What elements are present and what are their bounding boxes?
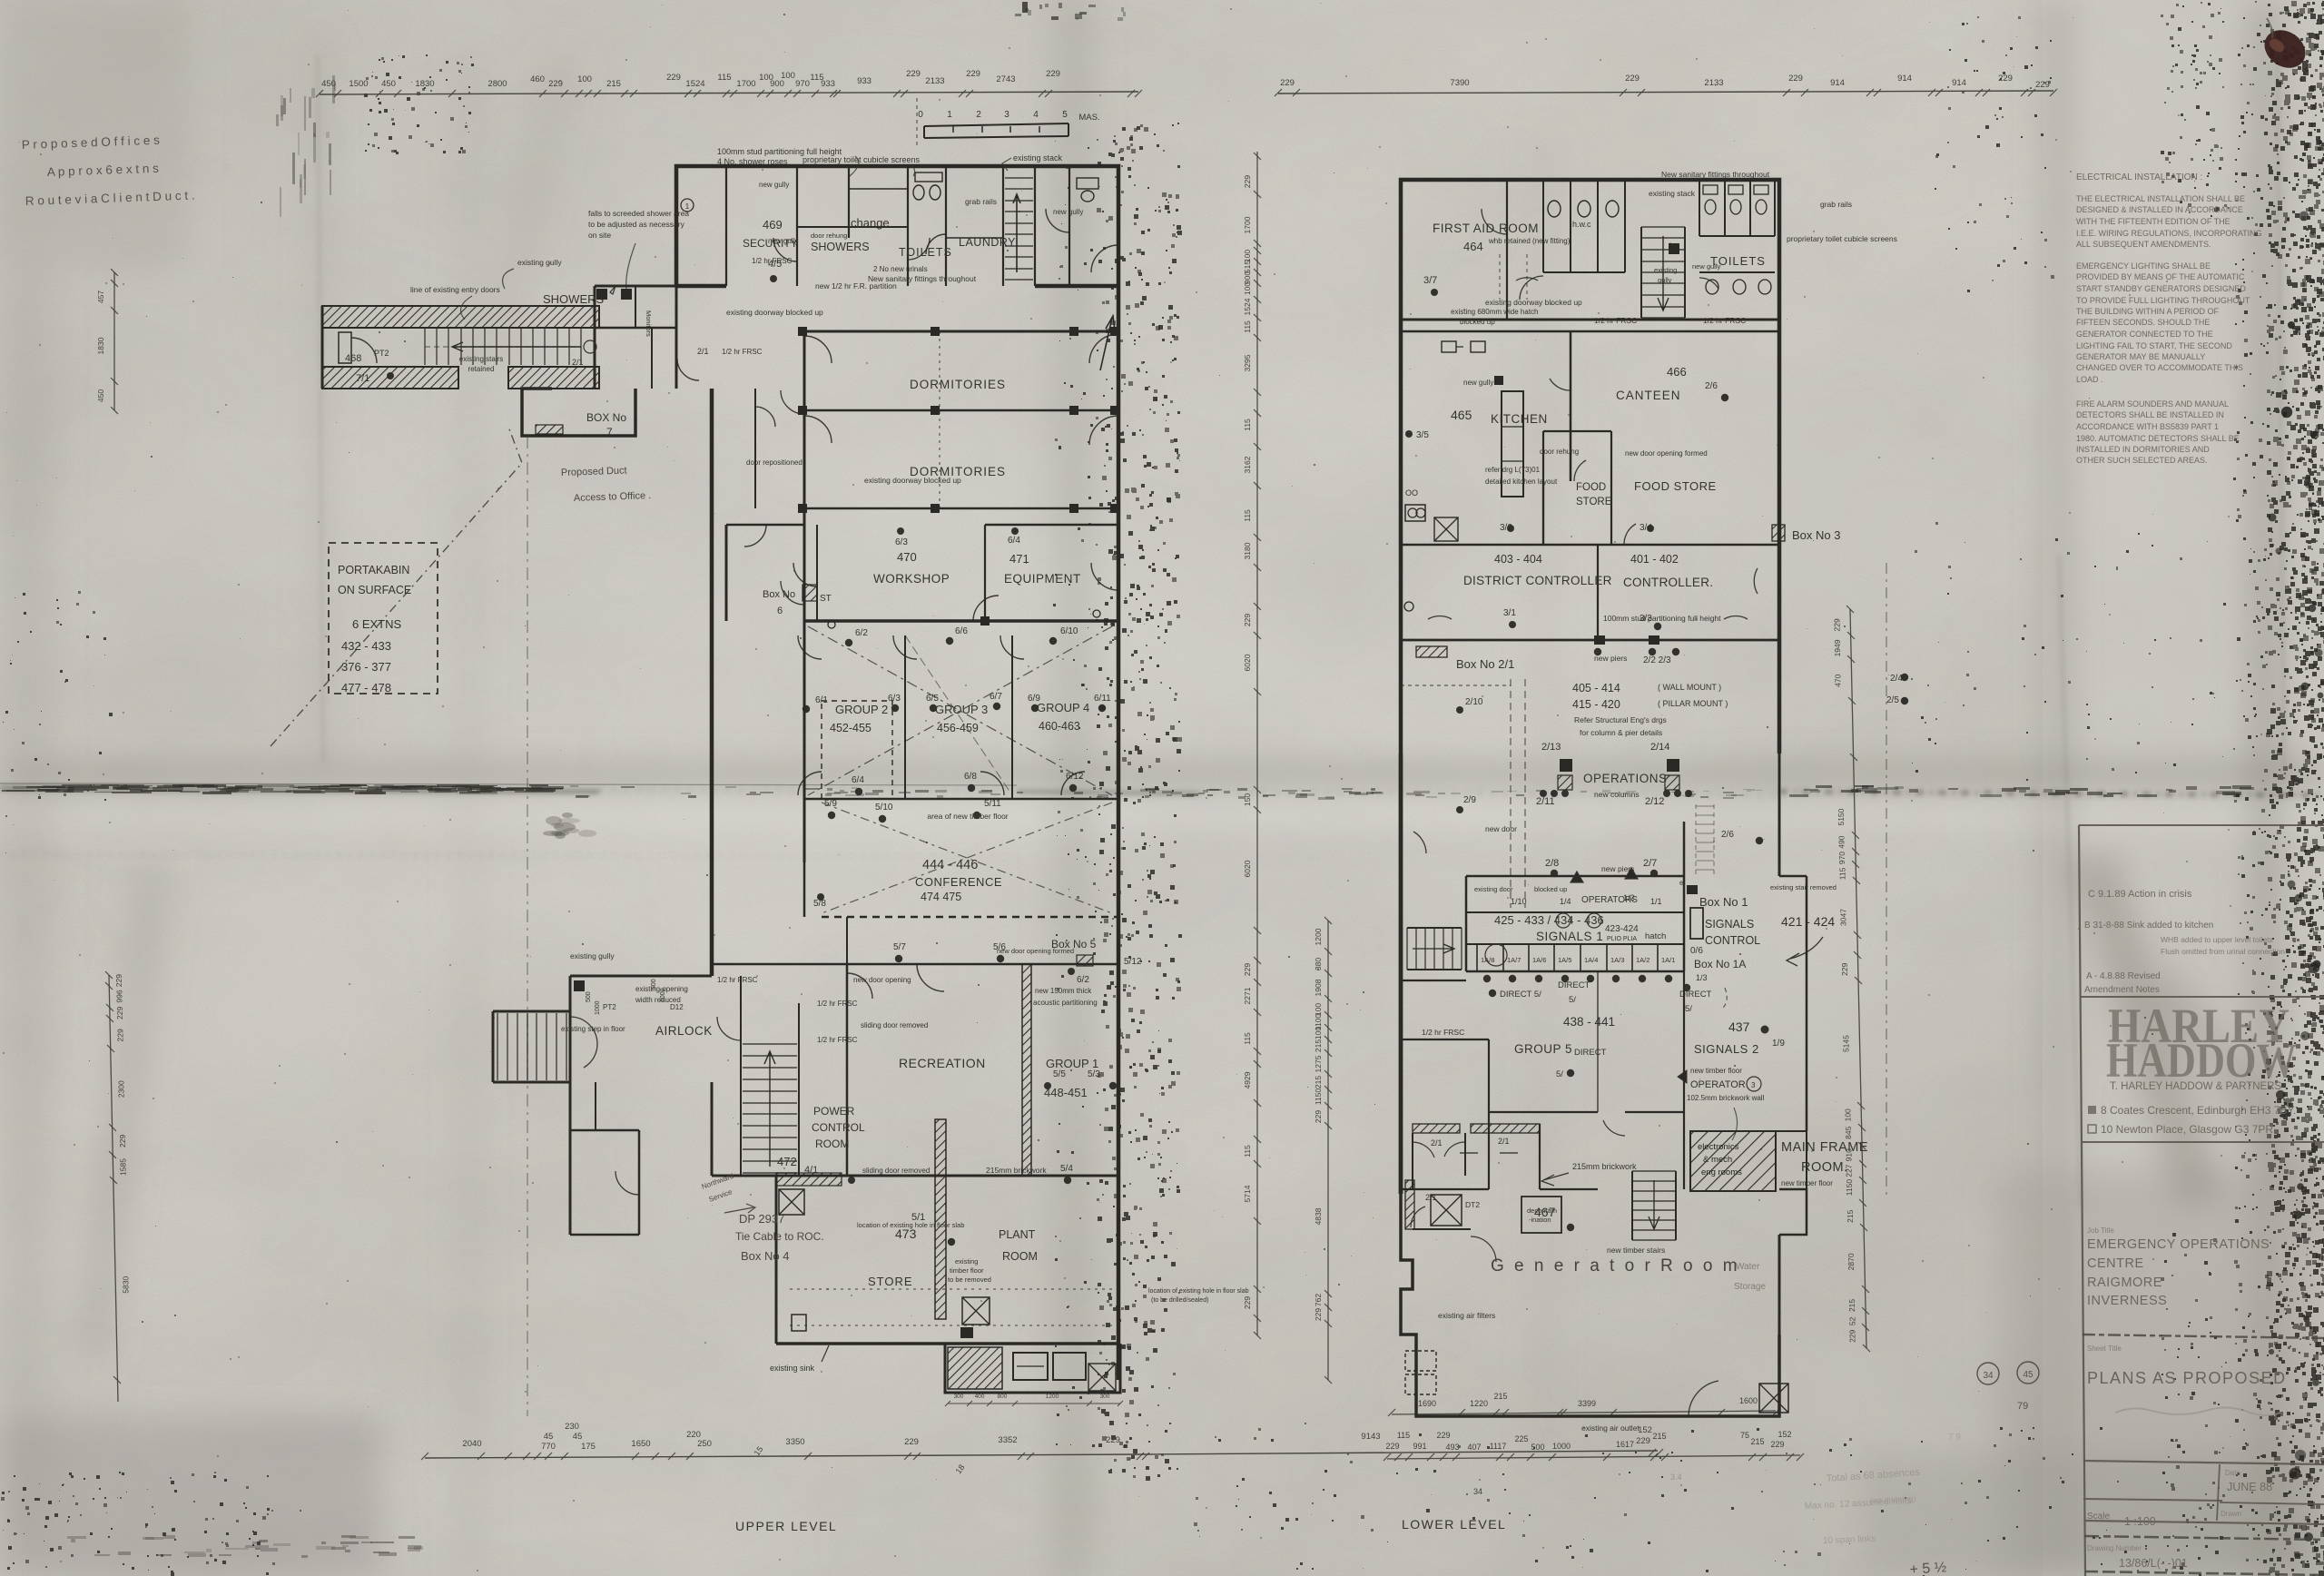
svg-text:1500: 1500 bbox=[349, 79, 368, 89]
svg-text:Scale: Scale bbox=[2087, 1512, 2110, 1522]
svg-text:456-459: 456-459 bbox=[937, 722, 979, 734]
svg-text:FIRE ALARM SOUNDERS AND MANUAL: FIRE ALARM SOUNDERS AND MANUAL bbox=[2076, 399, 2229, 409]
svg-text:1200: 1200 bbox=[1046, 1394, 1059, 1400]
svg-text:229: 229 bbox=[115, 1029, 124, 1041]
svg-text:detailed kitchen layout: detailed kitchen layout bbox=[1485, 478, 1558, 486]
svg-text:438 - 441: 438 - 441 bbox=[1563, 1015, 1615, 1029]
svg-text:Storage: Storage bbox=[1734, 1282, 1766, 1292]
svg-text:229: 229 bbox=[666, 73, 681, 83]
svg-text:INVERNESS: INVERNESS bbox=[2087, 1294, 2167, 1308]
svg-text:ROOM.: ROOM. bbox=[1801, 1160, 1848, 1175]
svg-text:PLIO PLIA: PLIO PLIA bbox=[1607, 936, 1637, 942]
svg-text:location of existing hole in f: location of existing hole in floor slab bbox=[857, 1221, 964, 1229]
svg-text:3399: 3399 bbox=[1578, 1399, 1596, 1408]
svg-text:sliding door removed: sliding door removed bbox=[861, 1021, 928, 1029]
svg-text:SIGNALS: SIGNALS bbox=[1705, 918, 1754, 931]
svg-text:new columns: new columns bbox=[1594, 790, 1640, 799]
svg-text:970: 970 bbox=[795, 79, 810, 89]
svg-text:CONTROLLER.: CONTROLLER. bbox=[1623, 576, 1713, 589]
svg-text:0/6: 0/6 bbox=[1690, 946, 1703, 956]
svg-text:change: change bbox=[851, 216, 890, 230]
svg-text:380: 380 bbox=[1314, 958, 1323, 970]
svg-text:1600: 1600 bbox=[1739, 1396, 1758, 1405]
svg-text:229: 229 bbox=[1106, 1435, 1120, 1445]
svg-text:RECREATION: RECREATION bbox=[899, 1056, 986, 1070]
svg-text:PLANS AS PROPOSED: PLANS AS PROPOSED bbox=[2087, 1369, 2287, 1387]
svg-text:grab rails: grab rails bbox=[965, 197, 997, 206]
svg-text:79: 79 bbox=[2017, 1401, 2028, 1412]
svg-text:existing sink: existing sink bbox=[770, 1364, 815, 1373]
svg-text:2: 2 bbox=[976, 110, 981, 120]
svg-text:215: 215 bbox=[1314, 1039, 1323, 1052]
svg-text:229: 229 bbox=[548, 79, 563, 89]
svg-text:existing doorway blocked up: existing doorway blocked up bbox=[1485, 298, 1582, 307]
svg-text:3350: 3350 bbox=[785, 1437, 804, 1447]
svg-text:34: 34 bbox=[1983, 1371, 1994, 1381]
svg-text:229: 229 bbox=[966, 69, 980, 79]
svg-text:Box No: Box No bbox=[763, 589, 795, 600]
svg-text:1A/4: 1A/4 bbox=[1584, 956, 1598, 964]
svg-text:2/13: 2/13 bbox=[1541, 742, 1561, 753]
svg-text:215: 215 bbox=[606, 79, 621, 89]
svg-text:& mech: & mech bbox=[1703, 1155, 1732, 1165]
svg-text:115: 115 bbox=[1243, 419, 1252, 431]
svg-text:RAIGMORE: RAIGMORE bbox=[2087, 1276, 2162, 1290]
svg-text:1A/7: 1A/7 bbox=[1507, 956, 1521, 964]
svg-text:2300: 2300 bbox=[117, 1080, 126, 1098]
svg-text:2271: 2271 bbox=[1243, 987, 1252, 1004]
svg-text:10 span links: 10 span links bbox=[1823, 1534, 1876, 1546]
svg-text:1/2 hr FRSC: 1/2 hr FRSC bbox=[1594, 316, 1637, 325]
svg-text:FIFTEEN SECONDS. SHOULD THE: FIFTEEN SECONDS. SHOULD THE bbox=[2076, 318, 2210, 327]
svg-text:4 No. shower roses: 4 No. shower roses bbox=[717, 157, 788, 166]
svg-text:3047: 3047 bbox=[1838, 909, 1847, 926]
svg-text:2/14: 2/14 bbox=[1650, 742, 1669, 753]
svg-text:1/4: 1/4 bbox=[1560, 897, 1571, 906]
svg-text:933: 933 bbox=[821, 79, 835, 89]
svg-text:DT2: DT2 bbox=[1465, 1200, 1480, 1209]
svg-text:762: 762 bbox=[1314, 1294, 1323, 1306]
svg-text:existing stairs: existing stairs bbox=[459, 355, 503, 363]
svg-text:1/2 hr FRSC: 1/2 hr FRSC bbox=[722, 348, 763, 356]
svg-text:acoustic partitioning: acoustic partitioning bbox=[1033, 999, 1098, 1007]
svg-text:45: 45 bbox=[573, 1432, 583, 1442]
svg-text:991: 991 bbox=[1413, 1442, 1426, 1451]
svg-text:1/2 hr FRSC: 1/2 hr FRSC bbox=[1422, 1028, 1464, 1037]
svg-text:996: 996 bbox=[115, 990, 124, 1002]
svg-text:115: 115 bbox=[1243, 320, 1252, 333]
svg-text:OO: OO bbox=[1405, 488, 1418, 497]
svg-text:DORMITORIES: DORMITORIES bbox=[910, 378, 1006, 391]
svg-text:GENERATOR CONNECTED TO THE: GENERATOR CONNECTED TO THE bbox=[2076, 330, 2213, 339]
svg-text:TOILETS: TOILETS bbox=[899, 246, 952, 259]
svg-text:5/3: 5/3 bbox=[1088, 1069, 1100, 1079]
svg-text:1150: 1150 bbox=[1845, 1179, 1854, 1197]
svg-text:1220: 1220 bbox=[1470, 1399, 1488, 1408]
svg-text:2/11: 2/11 bbox=[1536, 796, 1555, 807]
svg-text:ALL SUBSEQUENT AMENDMENTS.: ALL SUBSEQUENT AMENDMENTS. bbox=[2076, 240, 2211, 249]
svg-text:1275: 1275 bbox=[1314, 1055, 1323, 1072]
svg-text:2/1: 2/1 bbox=[1498, 1137, 1510, 1146]
svg-text:3/5: 3/5 bbox=[1416, 430, 1429, 440]
svg-text:new door: new door bbox=[1485, 824, 1517, 833]
svg-text:450: 450 bbox=[381, 79, 396, 89]
svg-text:blocked up: blocked up bbox=[1460, 318, 1495, 326]
svg-text:Water: Water bbox=[1736, 1262, 1760, 1272]
svg-text:5/: 5/ bbox=[1569, 995, 1576, 1005]
svg-text:existing stair removed: existing stair removed bbox=[1770, 883, 1837, 891]
svg-text:Flush omitted from urinal conn: Flush omitted from urinal connection bbox=[2161, 947, 2285, 956]
svg-text:405 - 414: 405 - 414 bbox=[1572, 682, 1620, 694]
svg-text:3/1: 3/1 bbox=[1503, 608, 1516, 618]
svg-text:423-424: 423-424 bbox=[1605, 924, 1639, 934]
svg-text:6/8: 6/8 bbox=[964, 772, 977, 782]
svg-text:7390: 7390 bbox=[1450, 78, 1469, 88]
svg-text:1/2 hr FRSC: 1/2 hr FRSC bbox=[817, 1036, 858, 1044]
svg-text:1/9: 1/9 bbox=[1772, 1039, 1785, 1049]
svg-text:229: 229 bbox=[906, 69, 921, 79]
svg-text:Box No 2/1: Box No 2/1 bbox=[1456, 657, 1514, 671]
svg-text:230: 230 bbox=[565, 1422, 579, 1432]
svg-text:on site: on site bbox=[588, 231, 611, 240]
svg-text:3: 3 bbox=[1751, 1081, 1756, 1089]
svg-text:970: 970 bbox=[1837, 852, 1846, 864]
svg-text:new door opening: new door opening bbox=[853, 976, 911, 984]
svg-text:existing air filters: existing air filters bbox=[1438, 1311, 1495, 1320]
svg-text:5150: 5150 bbox=[1837, 808, 1846, 825]
svg-text:Job Title: Job Title bbox=[2087, 1226, 2114, 1235]
svg-text:5/12: 5/12 bbox=[1124, 957, 1142, 967]
svg-text:WORKSHOP: WORKSHOP bbox=[873, 572, 950, 586]
svg-text:DIRECT: DIRECT bbox=[1558, 980, 1590, 990]
svg-text:477 - 478: 477 - 478 bbox=[341, 681, 391, 694]
svg-text:215: 215 bbox=[1493, 1392, 1507, 1401]
svg-text:DISTRICT CONTROLLER: DISTRICT CONTROLLER bbox=[1463, 574, 1612, 587]
svg-text:LOAD .: LOAD . bbox=[2076, 375, 2103, 384]
svg-text:whb retained (new fitting): whb retained (new fitting) bbox=[1488, 237, 1571, 245]
svg-text:1700: 1700 bbox=[736, 79, 755, 89]
svg-text:existing 680mm wide hatch: existing 680mm wide hatch bbox=[1451, 308, 1539, 316]
svg-text:5/: 5/ bbox=[1685, 1004, 1692, 1014]
svg-text:FOOD STORE: FOOD STORE bbox=[1634, 479, 1717, 493]
svg-text:5714: 5714 bbox=[1243, 1185, 1252, 1202]
svg-text:refer drg L(73)01: refer drg L(73)01 bbox=[1485, 466, 1541, 474]
svg-text:h.w.c: h.w.c bbox=[1572, 220, 1591, 229]
svg-text:215: 215 bbox=[1750, 1437, 1764, 1446]
svg-text:250: 250 bbox=[697, 1439, 712, 1449]
svg-text:450: 450 bbox=[321, 79, 336, 89]
svg-text:Box No 1: Box No 1 bbox=[1699, 895, 1748, 909]
svg-text:CANTEEN: CANTEEN bbox=[1616, 389, 1681, 402]
svg-text:2/7: 2/7 bbox=[1643, 858, 1657, 869]
svg-text:444 - 446: 444 - 446 bbox=[922, 858, 978, 872]
svg-text:2800: 2800 bbox=[487, 79, 507, 89]
svg-text:1/2 hr FRSC: 1/2 hr FRSC bbox=[1703, 316, 1746, 325]
svg-text:500: 500 bbox=[586, 991, 592, 1002]
svg-text:466: 466 bbox=[1667, 365, 1687, 379]
svg-text:6 EXTNS: 6 EXTNS bbox=[352, 617, 402, 631]
svg-text:102.5mm brickwork wall: 102.5mm brickwork wall bbox=[1687, 1094, 1765, 1102]
svg-text:new 150mm thick: new 150mm thick bbox=[1035, 987, 1092, 995]
svg-text:to be adjusted as necessary: to be adjusted as necessary bbox=[588, 220, 685, 229]
svg-text:DP 2937: DP 2937 bbox=[739, 1212, 784, 1226]
svg-text:1/1: 1/1 bbox=[1650, 897, 1662, 906]
svg-text:existing doorway blocked up: existing doorway blocked up bbox=[726, 308, 823, 317]
svg-text:421 - 424: 421 - 424 bbox=[1781, 914, 1835, 929]
svg-text:229: 229 bbox=[1832, 618, 1841, 631]
svg-text:4929: 4929 bbox=[1243, 1071, 1252, 1088]
svg-text:229: 229 bbox=[1243, 614, 1252, 626]
svg-text:eng rooms: eng rooms bbox=[1701, 1167, 1742, 1177]
svg-text:existing stack: existing stack bbox=[1013, 153, 1063, 163]
svg-text:7/1: 7/1 bbox=[356, 373, 369, 384]
svg-text:215mm brickwork: 215mm brickwork bbox=[1572, 1162, 1637, 1171]
svg-text:229: 229 bbox=[1625, 74, 1640, 84]
svg-text:1908: 1908 bbox=[1314, 979, 1323, 996]
svg-text:grab rails: grab rails bbox=[1820, 200, 1852, 209]
svg-text:1: 1 bbox=[947, 110, 952, 120]
svg-text:SIGNALS 2: SIGNALS 2 bbox=[1694, 1042, 1759, 1056]
svg-text:Monitors: Monitors bbox=[645, 310, 653, 337]
svg-text:6/3: 6/3 bbox=[888, 694, 901, 704]
svg-text:229: 229 bbox=[1243, 1296, 1252, 1309]
svg-text:D12: D12 bbox=[670, 1003, 684, 1011]
svg-text:3352: 3352 bbox=[998, 1435, 1017, 1445]
svg-text:Sheet Title: Sheet Title bbox=[2087, 1345, 2122, 1353]
svg-text:POWER: POWER bbox=[813, 1105, 855, 1118]
svg-text:6/7: 6/7 bbox=[990, 692, 1002, 702]
svg-text:electronics: electronics bbox=[1698, 1142, 1739, 1152]
svg-text:115: 115 bbox=[1397, 1431, 1410, 1440]
svg-text:START STANDBY GENERATORS DESIG: START STANDBY GENERATORS DESIGNED bbox=[2076, 284, 2246, 293]
svg-text:3/3: 3/3 bbox=[1640, 614, 1652, 624]
svg-text:229: 229 bbox=[115, 1007, 124, 1019]
svg-text:229: 229 bbox=[1280, 78, 1295, 88]
svg-text:retained: retained bbox=[468, 365, 495, 373]
svg-text:115: 115 bbox=[717, 73, 731, 83]
svg-text:Amendment Notes: Amendment Notes bbox=[2084, 985, 2160, 995]
svg-text:432 - 433: 432 - 433 bbox=[341, 639, 391, 653]
svg-text:1200: 1200 bbox=[1314, 928, 1323, 945]
svg-text:CHANGED OVER TO ACCOMMODATE TH: CHANGED OVER TO ACCOMMODATE THIS bbox=[2076, 363, 2243, 372]
svg-text:500: 500 bbox=[651, 979, 657, 990]
svg-text:ST: ST bbox=[820, 594, 832, 604]
svg-text:460: 460 bbox=[530, 74, 545, 84]
svg-text:MAIN FRAME: MAIN FRAME bbox=[1781, 1140, 1868, 1155]
svg-text:PROVIDED BY MEANS OF THE AUTOM: PROVIDED BY MEANS OF THE AUTOMATIC bbox=[2076, 272, 2245, 281]
svg-text:Box No 3: Box No 3 bbox=[1792, 528, 1840, 542]
svg-text:LOWER LEVEL: LOWER LEVEL bbox=[1402, 1517, 1506, 1532]
svg-text:45: 45 bbox=[2023, 1370, 2033, 1380]
svg-text:469: 469 bbox=[763, 218, 783, 231]
svg-text:SHOWERS: SHOWERS bbox=[543, 292, 605, 306]
svg-text:933: 933 bbox=[857, 76, 871, 86]
svg-text:B 31-8-88 Sink added to k: B 31-8-88 Sink added to kitchen bbox=[2084, 921, 2213, 931]
svg-text:13/86/L(- -)01: 13/86/L(- -)01 bbox=[2119, 1557, 2188, 1570]
svg-text:2/6: 2/6 bbox=[1721, 830, 1734, 840]
svg-text:( WALL MOUNT ): ( WALL MOUNT ) bbox=[1658, 683, 1721, 692]
svg-text:PT2: PT2 bbox=[603, 1003, 616, 1011]
svg-text:WITH THE FIFTEENTH EDITION OF: WITH THE FIFTEENTH EDITION OF THE bbox=[2076, 217, 2230, 226]
svg-text:400: 400 bbox=[975, 1394, 985, 1400]
svg-text:8 Coates Crescent, Edinburgh: 8 Coates Crescent, Edinburgh EH3 7BY. bbox=[2101, 1104, 2296, 1117]
svg-text:452-455: 452-455 bbox=[830, 722, 871, 734]
svg-text:proprietary toilet cubicle scr: proprietary toilet cubicle screens bbox=[1787, 234, 1897, 243]
svg-text:1830: 1830 bbox=[96, 337, 105, 354]
svg-text:215: 215 bbox=[1847, 1299, 1856, 1312]
svg-text:6/4: 6/4 bbox=[852, 775, 864, 785]
svg-text:215: 215 bbox=[1652, 1432, 1666, 1441]
svg-text:1524: 1524 bbox=[685, 79, 704, 89]
svg-text:e: e bbox=[1679, 879, 1684, 887]
svg-text:474 475: 474 475 bbox=[921, 891, 961, 903]
svg-text:INSTALLED IN DORMITORIES AND: INSTALLED IN DORMITORIES AND bbox=[2076, 445, 2210, 454]
svg-text:hatch: hatch bbox=[1645, 931, 1666, 941]
svg-text:1700: 1700 bbox=[1243, 216, 1252, 233]
svg-text:152: 152 bbox=[1777, 1430, 1791, 1439]
svg-text:115: 115 bbox=[1243, 1032, 1252, 1045]
svg-text:1150: 1150 bbox=[1314, 1088, 1323, 1106]
svg-text:2/1: 2/1 bbox=[1431, 1138, 1443, 1148]
svg-text:470: 470 bbox=[1834, 674, 1843, 686]
svg-text:2/1: 2/1 bbox=[697, 347, 709, 356]
svg-text:HADDOW: HADDOW bbox=[2106, 1033, 2297, 1088]
svg-text:471: 471 bbox=[1009, 552, 1029, 566]
svg-text:LAUNDRY: LAUNDRY bbox=[959, 236, 1016, 249]
svg-text:1A/1: 1A/1 bbox=[1661, 956, 1675, 964]
svg-text:OPERATOR: OPERATOR bbox=[1690, 1079, 1746, 1090]
svg-text:2/2 2/3: 2/2 2/3 bbox=[1643, 655, 1671, 665]
svg-text:800: 800 bbox=[998, 1394, 1008, 1400]
svg-text:New sanitary fittings througho: New sanitary fittings throughout bbox=[868, 274, 977, 283]
svg-text:STORE: STORE bbox=[1576, 497, 1612, 507]
svg-text:Box No 4: Box No 4 bbox=[741, 1249, 789, 1263]
svg-text:2/1: 2/1 bbox=[572, 358, 584, 367]
svg-text:( PILLAR MOUNT ): ( PILLAR MOUNT ) bbox=[1658, 699, 1728, 708]
svg-text:2743: 2743 bbox=[996, 74, 1015, 84]
svg-text:100mm stud partitioning full h: 100mm stud partitioning full height bbox=[1603, 614, 1721, 623]
svg-text:5/: 5/ bbox=[1556, 1069, 1563, 1079]
svg-text:215: 215 bbox=[1314, 1076, 1323, 1088]
svg-text:CONTROL: CONTROL bbox=[812, 1121, 865, 1134]
svg-text:1949: 1949 bbox=[1833, 639, 1842, 656]
svg-text:34: 34 bbox=[1473, 1487, 1482, 1496]
svg-text:6020: 6020 bbox=[1243, 654, 1252, 671]
svg-text:1524: 1524 bbox=[1243, 298, 1252, 315]
svg-text:415 - 420: 415 - 420 bbox=[1572, 698, 1620, 711]
svg-text:7 9: 7 9 bbox=[1948, 1433, 1961, 1443]
svg-text:45: 45 bbox=[544, 1432, 554, 1442]
svg-text:5/4: 5/4 bbox=[1060, 1164, 1073, 1174]
svg-text:ROOM: ROOM bbox=[815, 1138, 849, 1150]
svg-text:1A/5: 1A/5 bbox=[1558, 956, 1571, 964]
svg-text:1000: 1000 bbox=[660, 988, 666, 1002]
svg-text:DESIGNED & INSTALLED IN ACCORD: DESIGNED & INSTALLED IN ACCORDANCE bbox=[2076, 205, 2243, 214]
svg-text:GENERATOR MAY BE MANUALLY: GENERATOR MAY BE MANUALLY bbox=[2076, 352, 2205, 361]
svg-text:EQUIPMENT: EQUIPMENT bbox=[1004, 572, 1081, 586]
svg-text:152: 152 bbox=[1638, 1425, 1652, 1435]
svg-text:376 - 377: 376 - 377 bbox=[341, 660, 391, 674]
svg-text:914: 914 bbox=[1830, 78, 1845, 88]
svg-text:2133: 2133 bbox=[925, 76, 944, 86]
svg-text:229: 229 bbox=[1314, 1110, 1323, 1123]
svg-text:2133: 2133 bbox=[1704, 78, 1723, 88]
svg-text:location of existing hole in f: location of existing hole in floor slab bbox=[1148, 1288, 1249, 1295]
svg-text:100: 100 bbox=[577, 74, 592, 84]
svg-text:new door opening formed: new door opening formed bbox=[1625, 449, 1708, 458]
svg-text:3180: 3180 bbox=[1243, 542, 1252, 559]
svg-text:new timber floor: new timber floor bbox=[1690, 1067, 1742, 1075]
svg-text:437: 437 bbox=[1728, 1019, 1750, 1034]
svg-text:5/7: 5/7 bbox=[893, 942, 906, 952]
svg-text:C 9.1.89 Action in crisi: C 9.1.89 Action in crisis bbox=[2088, 889, 2192, 900]
svg-text:3.4: 3.4 bbox=[1670, 1473, 1682, 1482]
svg-text:6/1: 6/1 bbox=[815, 695, 828, 705]
svg-text:115: 115 bbox=[1837, 867, 1846, 880]
svg-text:timber floor: timber floor bbox=[950, 1266, 984, 1275]
svg-text:100: 100 bbox=[781, 71, 795, 81]
svg-text:door rehung: door rehung bbox=[1540, 448, 1579, 456]
svg-text:229: 229 bbox=[1314, 1308, 1323, 1321]
svg-text:1/2 hr FRSC: 1/2 hr FRSC bbox=[817, 1000, 858, 1008]
svg-text:6/2: 6/2 bbox=[1077, 975, 1089, 985]
svg-text:JUNE 88: JUNE 88 bbox=[2227, 1481, 2272, 1493]
svg-text:TOILETS: TOILETS bbox=[1710, 254, 1766, 268]
svg-text:2/9: 2/9 bbox=[1463, 795, 1476, 805]
svg-text:6/4: 6/4 bbox=[1008, 536, 1020, 546]
svg-text:6: 6 bbox=[777, 606, 783, 616]
svg-text:G e n e r a t o r R o o m: G e n e r a t o r R o o m bbox=[1491, 1256, 1740, 1276]
svg-text:450: 450 bbox=[96, 389, 105, 402]
svg-text:BOX No: BOX No bbox=[586, 411, 626, 424]
svg-text:existing door: existing door bbox=[1474, 885, 1513, 893]
svg-text:472: 472 bbox=[777, 1155, 797, 1168]
svg-text:914: 914 bbox=[1897, 74, 1912, 84]
svg-text:new door opening formed: new door opening formed bbox=[997, 947, 1074, 955]
svg-text:Date: Date bbox=[2225, 1469, 2240, 1477]
svg-text:GROUP 4: GROUP 4 bbox=[1037, 701, 1089, 714]
svg-text:460-463: 460-463 bbox=[1039, 720, 1080, 733]
svg-text:for column & pier details: for column & pier details bbox=[1580, 728, 1662, 737]
svg-text:2 No new urinals: 2 No new urinals bbox=[873, 265, 928, 273]
svg-text:115: 115 bbox=[1243, 1145, 1252, 1157]
svg-text:6/6: 6/6 bbox=[955, 626, 968, 636]
svg-text:100: 100 bbox=[1843, 1108, 1852, 1121]
svg-text:ACCORDANCE WITH BS5839 PART 1: ACCORDANCE WITH BS5839 PART 1 bbox=[2076, 422, 2219, 431]
svg-text:229: 229 bbox=[1243, 963, 1252, 976]
svg-text:52: 52 bbox=[1847, 1316, 1856, 1325]
svg-text:CONFERENCE: CONFERENCE bbox=[915, 875, 1002, 889]
svg-text:1A/8: 1A/8 bbox=[1481, 956, 1494, 964]
svg-text:AIRLOCK: AIRLOCK bbox=[655, 1024, 713, 1038]
svg-text:1617: 1617 bbox=[1616, 1440, 1634, 1449]
svg-text:Tie Cable to ROC.: Tie Cable to ROC. bbox=[735, 1230, 824, 1243]
svg-text:2/6: 2/6 bbox=[1705, 381, 1718, 391]
svg-text:1A/6: 1A/6 bbox=[1532, 956, 1546, 964]
svg-text:225: 225 bbox=[1514, 1434, 1528, 1443]
svg-text:WHB added to upper level toile: WHB added to upper level toilets bbox=[2161, 935, 2273, 944]
svg-text:0: 0 bbox=[918, 110, 923, 120]
svg-text:ON SURFACE: ON SURFACE bbox=[338, 584, 411, 596]
svg-text:Refer Structural Eng's drgs: Refer Structural Eng's drgs bbox=[1574, 715, 1667, 724]
svg-text:gully: gully bbox=[1658, 276, 1672, 284]
svg-text:I.E.E. WIRING REGULATIONS, INC: I.E.E. WIRING REGULATIONS, INCORPORATING bbox=[2076, 229, 2262, 238]
svg-text:229: 229 bbox=[1840, 962, 1849, 975]
svg-text:464: 464 bbox=[1463, 240, 1483, 253]
svg-text:6/3: 6/3 bbox=[895, 537, 908, 547]
svg-text:100: 100 bbox=[1314, 1027, 1323, 1039]
svg-text:5/10: 5/10 bbox=[875, 803, 893, 813]
